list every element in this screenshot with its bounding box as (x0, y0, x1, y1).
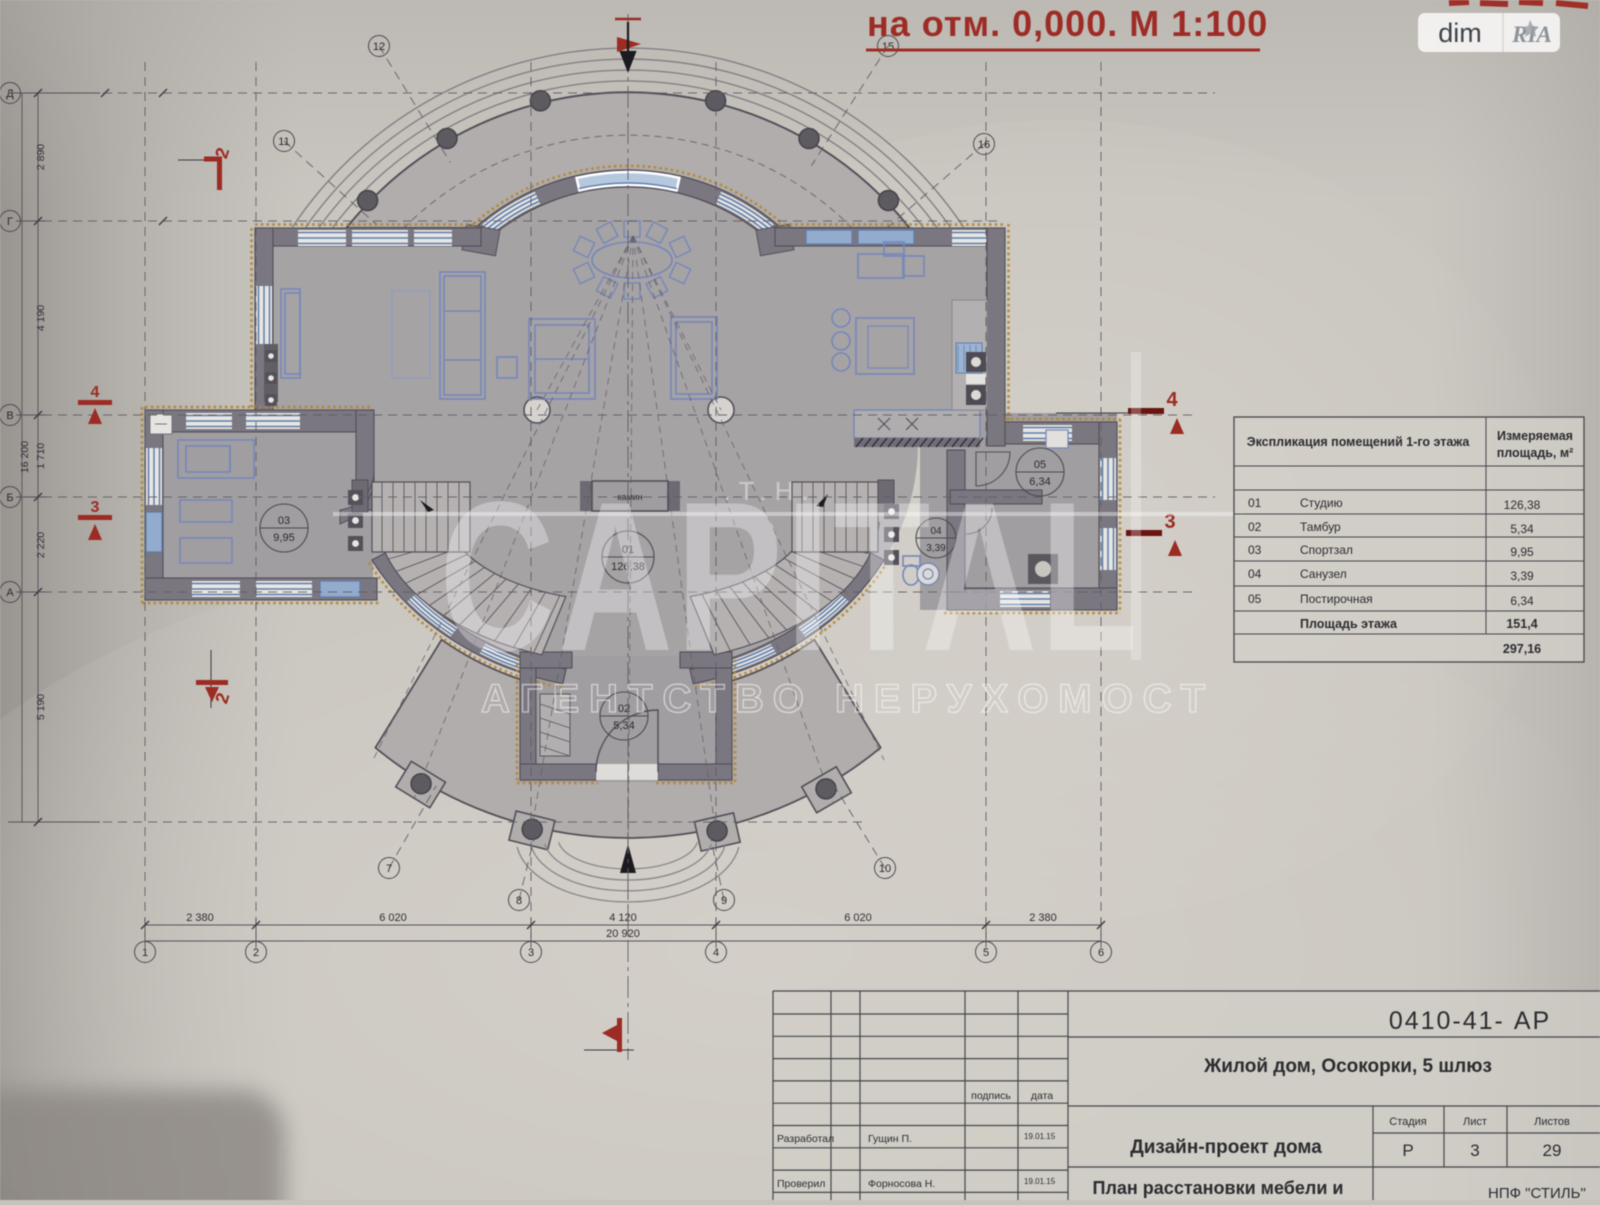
svg-text:2 890: 2 890 (35, 144, 47, 170)
svg-text:Г: Г (7, 216, 13, 228)
svg-text:на отм. 0,000. М 1:100: на отм. 0,000. М 1:100 (867, 3, 1268, 44)
svg-text:Площадь этажа: Площадь этажа (1300, 617, 1398, 631)
svg-text:19.01.15: 19.01.15 (1024, 1177, 1056, 1186)
svg-text:Студию: Студию (1300, 496, 1343, 510)
svg-text:6 020: 6 020 (844, 912, 872, 924)
svg-text:3,39: 3,39 (1510, 569, 1534, 583)
svg-text:Лист: Лист (1463, 1116, 1487, 1128)
svg-text:03: 03 (1248, 543, 1262, 557)
svg-text:Экспликация помещений 1-го эта: Экспликация помещений 1-го этажа (1247, 435, 1471, 449)
svg-text:0410-41- АР: 0410-41- АР (1389, 1007, 1551, 1035)
svg-text:19.01.15: 19.01.15 (1024, 1132, 1056, 1141)
svg-text:Листов: Листов (1534, 1116, 1570, 1128)
svg-text:6: 6 (1098, 947, 1104, 959)
svg-text:Б: Б (6, 492, 13, 504)
svg-text:Разработал: Разработал (777, 1133, 834, 1145)
svg-text:Стадия: Стадия (1389, 1116, 1427, 1128)
svg-text:Санузел: Санузел (1300, 567, 1347, 581)
svg-text:Постирочная: Постирочная (1300, 592, 1373, 606)
svg-text:6 020: 6 020 (379, 912, 407, 924)
svg-text:11: 11 (278, 136, 289, 148)
svg-text:297,16: 297,16 (1503, 642, 1541, 656)
svg-text:Дизайн-проект дома: Дизайн-проект дома (1130, 1137, 1322, 1158)
svg-text:подпись: подпись (971, 1090, 1011, 1102)
svg-text:4: 4 (91, 384, 100, 401)
svg-text:03: 03 (278, 515, 290, 527)
svg-text:2 380: 2 380 (1029, 912, 1057, 924)
svg-text:01: 01 (1248, 496, 1262, 510)
svg-text:2 380: 2 380 (186, 912, 214, 924)
svg-text:4 120: 4 120 (609, 912, 637, 924)
svg-text:6,34: 6,34 (1510, 594, 1534, 608)
svg-text:151,4: 151,4 (1506, 617, 1537, 631)
svg-text:1 710: 1 710 (35, 443, 47, 469)
svg-text:В: В (6, 410, 13, 422)
svg-text:4 190: 4 190 (35, 305, 47, 331)
svg-text:20 920: 20 920 (606, 928, 640, 940)
svg-text:Гущин П.: Гущин П. (868, 1133, 912, 1145)
svg-text:3: 3 (91, 499, 100, 516)
svg-text:1: 1 (142, 947, 148, 959)
svg-text:2: 2 (253, 947, 259, 959)
svg-text:АГЕНТСТВО НЕРУХОМОСТ: АГЕНТСТВО НЕРУХОМОСТ (481, 677, 1215, 721)
svg-text:4: 4 (713, 947, 719, 959)
svg-text:16: 16 (978, 139, 990, 151)
svg-text:НПФ "СТИЛЬ": НПФ "СТИЛЬ" (1488, 1185, 1586, 1200)
svg-text:dim: dim (1438, 18, 1482, 48)
svg-text:Форносова Н.: Форносова Н. (868, 1178, 935, 1190)
svg-text:7: 7 (386, 863, 392, 875)
svg-text:Тамбур: Тамбур (1300, 520, 1341, 534)
svg-text:Жилой дом, Осокорки, 5 шлюз: Жилой дом, Осокорки, 5 шлюз (1203, 1056, 1492, 1077)
svg-text:дата: дата (1031, 1090, 1053, 1102)
svg-text:9: 9 (721, 895, 727, 907)
svg-text:5,34: 5,34 (613, 720, 634, 732)
svg-text:Измеряемая: Измеряемая (1497, 429, 1573, 443)
svg-text:12: 12 (373, 41, 385, 53)
svg-text:3: 3 (528, 947, 534, 959)
svg-text:Спортзал: Спортзал (1300, 543, 1353, 557)
svg-text:5 190: 5 190 (35, 694, 47, 720)
svg-text:9,95: 9,95 (273, 532, 294, 544)
svg-text:02: 02 (1248, 520, 1262, 534)
svg-text:29: 29 (1543, 1141, 1562, 1160)
svg-text:.Т.Н.: .Т.Н. (723, 476, 816, 506)
svg-text:А: А (6, 587, 14, 599)
svg-text:Р: Р (1402, 1141, 1413, 1160)
svg-text:5,34: 5,34 (1510, 522, 1534, 536)
svg-text:05: 05 (1248, 592, 1262, 606)
svg-text:126,38: 126,38 (1504, 498, 1541, 512)
svg-text:Проверил: Проверил (777, 1178, 825, 1190)
svg-text:5: 5 (983, 947, 989, 959)
svg-text:3: 3 (1470, 1141, 1479, 1160)
svg-text:9,95: 9,95 (1510, 545, 1534, 559)
svg-text:4: 4 (1166, 389, 1178, 411)
svg-text:8: 8 (516, 895, 522, 907)
svg-text:площадь, м²: площадь, м² (1497, 446, 1574, 460)
svg-text:16 200: 16 200 (19, 441, 31, 473)
svg-text:Д: Д (6, 88, 14, 100)
svg-text:План расстановки мебели и: План расстановки мебели и (1093, 1178, 1344, 1198)
svg-text:2 220: 2 220 (35, 532, 47, 558)
svg-text:04: 04 (1248, 567, 1262, 581)
svg-text:10: 10 (879, 863, 891, 875)
